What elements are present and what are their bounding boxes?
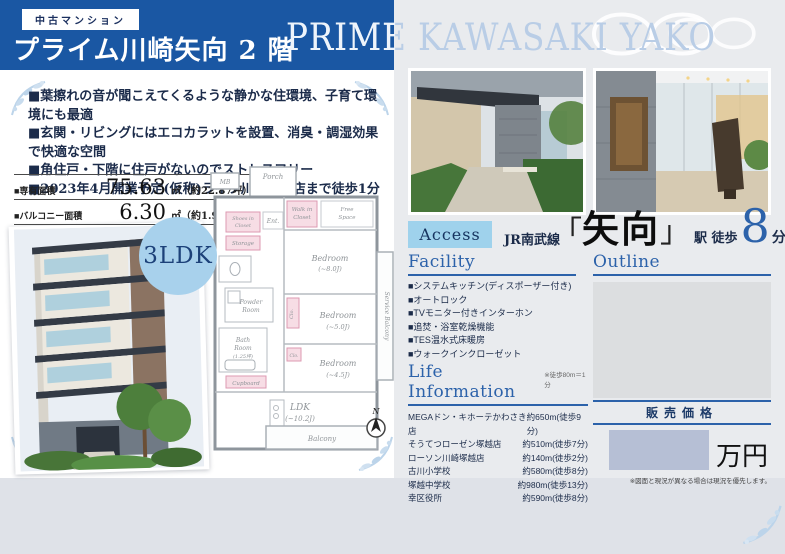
place-name: 古川小学校 (408, 465, 451, 479)
floor-plan: Porch MB Service Balcony Walk in Closet … (206, 164, 398, 464)
station-name: 矢向 (582, 211, 660, 248)
floorplan-label: Walk in (292, 207, 313, 213)
area-label: ■バルコニー面積 (14, 203, 104, 222)
access-badge: Access (408, 221, 492, 248)
facility-item: ■オートロック (408, 294, 576, 308)
floorplan-label: (~5.0J) (326, 323, 350, 331)
floorplan-label: Bath (235, 337, 250, 344)
floorplan-label: Closet (293, 215, 311, 221)
place-name: そうてつローゼン塚越店 (408, 438, 501, 452)
walk-unit: 分 (772, 227, 785, 247)
place-distance: 約140m(徒歩2分) (522, 452, 588, 466)
facility-item: ■TVモニター付きインターホン (408, 307, 576, 321)
flyer-page: 中古マンション プライム川崎矢向 2 階 PRIME KAWASAKI YAKO… (0, 0, 785, 554)
floorplan-label: Cupboard (232, 381, 260, 387)
floorplan-label: N (372, 407, 381, 416)
place-distance: 約590m(徒歩8分) (522, 492, 588, 506)
price-row: 万円 (593, 430, 771, 470)
outline-placeholder-box (593, 282, 771, 398)
floorplan-label: Bedroom (319, 311, 357, 320)
feature-item: ■玄関・リビングにはエコカラットを設置、消臭・調湿効果で快適な空間 (28, 125, 386, 162)
facility-heading: Facility (408, 252, 576, 276)
layout-badge: 3LDK (139, 217, 217, 295)
outline-section: Outline (593, 252, 771, 398)
feature-item: ■葉擦れの音が聞こえてくるような静かな住環境、子育て環境にも最適 (28, 88, 386, 125)
list-item: そうてつローゼン塚越店 約510m(徒歩7分) (408, 438, 588, 452)
place-name: ローソン川崎塚越店 (408, 452, 485, 466)
floorplan-label: Porch (262, 173, 283, 181)
list-item: MEGAドン・キホーテかわさき店 約650m(徒歩9分) (408, 411, 588, 438)
floorplan-label: (~8.0J) (318, 265, 342, 273)
property-type-badge: 中古マンション (22, 9, 139, 30)
bracket-close: 」 (660, 218, 690, 248)
area-value: 6.30 (104, 200, 166, 224)
area-value: 75.63 (104, 175, 166, 199)
entrance-approach-photo (408, 68, 586, 215)
page-title-english-overlay: PRIME KAWASAKI YAKO (286, 16, 395, 76)
floorplan-label: Room (233, 345, 252, 352)
place-distance: 約510m(徒歩7分) (522, 438, 588, 452)
place-distance: 約580m(徒歩8分) (522, 465, 588, 479)
floorplan-label: Free (340, 207, 355, 213)
area-label: ■専有面積 (14, 178, 104, 197)
entrance-lobby-photo (593, 68, 771, 215)
walk-minutes: 8 (741, 203, 770, 249)
floorplan-label: (~10.2J) (285, 415, 315, 423)
entrance-approach-illustration (411, 71, 583, 212)
floorplan-label: Storage (232, 241, 255, 247)
facility-item: ■追焚・浴室乾燥機能 (408, 321, 576, 335)
page-title: プライム川崎矢向 2 階 (13, 30, 295, 67)
floorplan-label: Balcony (307, 435, 337, 443)
facility-list: ■システムキッチン(ディスポーザー付き) ■オートロック ■TVモニター付きイン… (408, 280, 576, 361)
page-title-english: PRIME KAWASAKI YAKO PRIME KAWASAKI YAKO (286, 16, 716, 59)
price-redacted-box (609, 430, 709, 470)
floorplan-label: Shoes in (232, 216, 254, 222)
life-information-heading: Life Information (408, 362, 544, 402)
floorplan-label: Bedroom (319, 359, 357, 368)
entrance-lobby-illustration (596, 71, 768, 212)
floorplan-label: Closet (235, 223, 252, 229)
life-information-heading-row: Life Information ※徒歩80m＝1分 (408, 362, 588, 406)
facility-section: Facility ■システムキッチン(ディスポーザー付き) ■オートロック ■T… (408, 252, 576, 361)
list-item: 塚越中学校 約980m(徒歩13分) (408, 479, 588, 493)
place-name: 幸区役所 (408, 492, 442, 506)
floorplan-label: (~4.5J) (326, 371, 350, 379)
walk-conversion-note: ※徒歩80m＝1分 (544, 369, 588, 389)
price-disclaimer: ※図面と現況が異なる場合は現況を優先します。 (593, 475, 771, 485)
floorplan-label: Clo. (290, 353, 300, 359)
bottom-strip-background (0, 478, 785, 554)
walk-label: 駅 徒歩 (694, 227, 738, 246)
station-access: 「 矢向 」 駅 徒歩 8 分 (552, 203, 785, 249)
life-information-section: Life Information ※徒歩80m＝1分 MEGAドン・キホーテかわ… (408, 362, 588, 506)
floorplan-label: Space (339, 215, 357, 221)
floorplan-label: MB (219, 179, 231, 186)
floorplan-label: Ent. (266, 218, 280, 225)
price-unit: 万円 (716, 444, 768, 470)
flourish-icon (740, 500, 785, 550)
price-label: 販売価格 (593, 400, 771, 425)
price-section: 販売価格 万円 ※図面と現況が異なる場合は現況を優先します。 (593, 400, 771, 485)
list-item: 古川小学校 約580m(徒歩8分) (408, 465, 588, 479)
place-name: MEGAドン・キホーテかわさき店 (408, 411, 527, 438)
bracket-open: 「 (552, 218, 582, 248)
floorplan-label: Room (241, 307, 260, 314)
place-distance: 約650m(徒歩9分) (527, 411, 588, 438)
floorplan-label: Service Balcony (383, 292, 390, 341)
outline-heading: Outline (593, 252, 771, 276)
life-information-list: MEGAドン・キホーテかわさき店 約650m(徒歩9分) そうてつローゼン塚越店… (408, 411, 588, 506)
floorplan-label: Clo. (289, 309, 295, 319)
place-name: 塚越中学校 (408, 479, 451, 493)
floorplan-label: Powder (239, 299, 264, 306)
list-item: ローソン川崎塚越店 約140m(徒歩2分) (408, 452, 588, 466)
floorplan-label: LDK (289, 403, 311, 413)
facility-item: ■ウォークインクローゼット (408, 348, 576, 362)
place-distance: 約980m(徒歩13分) (518, 479, 588, 493)
facility-item: ■TES温水式床暖房 (408, 334, 576, 348)
list-item: 幸区役所 約590m(徒歩8分) (408, 492, 588, 506)
facility-item: ■システムキッチン(ディスポーザー付き) (408, 280, 576, 294)
floorplan-label: (1.25坪) (233, 353, 253, 360)
floorplan-label: Bedroom (311, 254, 349, 263)
